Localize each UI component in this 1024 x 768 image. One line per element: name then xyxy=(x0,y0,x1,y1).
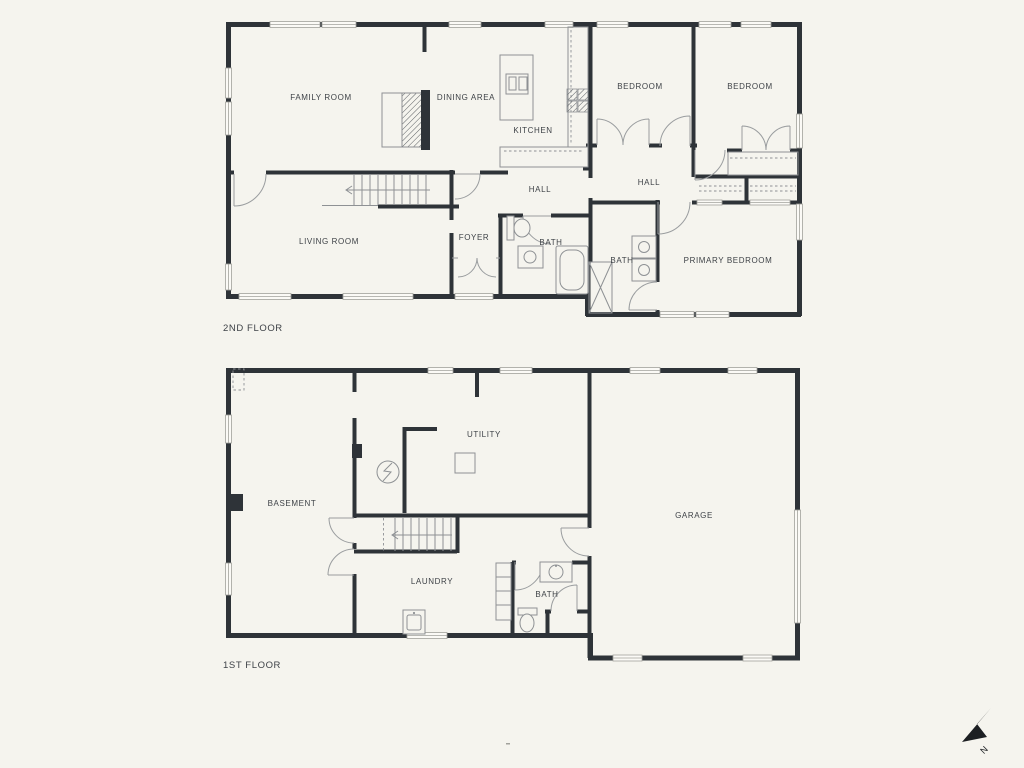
room-label-utility: UTILITY xyxy=(467,430,501,439)
room-label-dining-area: DINING AREA xyxy=(437,93,495,102)
wall-pier xyxy=(352,444,362,458)
floor-plan-canvas: FAMILY ROOM DINING AREA KITCHEN BEDROOM … xyxy=(0,0,1024,768)
room-label-basement: BASEMENT xyxy=(268,499,317,508)
room-label-bath-right: BATH xyxy=(610,256,633,265)
room-label-bedroom-left: BEDROOM xyxy=(617,82,663,91)
first-floor-plan: BASEMENT UTILITY GARAGE LAUNDRY BATH 1ST… xyxy=(223,368,801,672)
first-floor-stairs xyxy=(384,518,453,551)
water-heater-icon xyxy=(377,461,399,483)
shower-icon xyxy=(589,262,612,313)
second-floor-exterior-walls xyxy=(226,22,801,316)
floor-label-second: 2ND FLOOR xyxy=(223,323,283,334)
first-floor-bath-fixtures xyxy=(496,562,572,632)
kitchen-island xyxy=(500,55,533,120)
page-mark xyxy=(506,743,510,745)
north-arrow-icon xyxy=(962,708,991,742)
room-label-kitchen: KITCHEN xyxy=(513,126,552,135)
primary-bath-fixtures xyxy=(589,236,656,313)
room-label-garage: GARAGE xyxy=(675,511,713,520)
second-floor-interior-walls xyxy=(228,22,799,316)
first-floor-interior-walls xyxy=(354,368,590,658)
room-label-living-room: LIVING ROOM xyxy=(299,237,359,246)
room-label-primary-bedroom: PRIMARY BEDROOM xyxy=(684,256,773,265)
room-label-hall-right: HALL xyxy=(638,178,660,187)
room-label-bath-left: BATH xyxy=(539,238,562,247)
room-label-family-room: FAMILY ROOM xyxy=(290,93,351,102)
second-floor-stairs xyxy=(322,174,430,206)
second-floor-doors xyxy=(234,116,790,310)
hall-bath-fixtures xyxy=(507,216,588,294)
floor-label-first: 1ST FLOOR xyxy=(223,660,281,671)
compass: N xyxy=(962,708,991,756)
north-label: N xyxy=(978,744,990,756)
basement-chimney xyxy=(228,494,243,511)
linen-shelves xyxy=(496,563,511,620)
room-label-laundry: LAUNDRY xyxy=(411,577,453,586)
room-label-hall-left: HALL xyxy=(529,185,551,194)
utility-equipment-icon xyxy=(455,453,475,473)
fireplace xyxy=(382,90,430,150)
room-label-foyer: FOYER xyxy=(459,233,490,242)
room-label-bath-first: BATH xyxy=(535,590,558,599)
room-label-bedroom-right: BEDROOM xyxy=(727,82,773,91)
second-floor-plan: FAMILY ROOM DINING AREA KITCHEN BEDROOM … xyxy=(223,22,803,335)
second-floor-windows xyxy=(226,22,803,318)
laundry-sink-icon xyxy=(403,610,425,634)
stove-icon xyxy=(567,89,588,112)
